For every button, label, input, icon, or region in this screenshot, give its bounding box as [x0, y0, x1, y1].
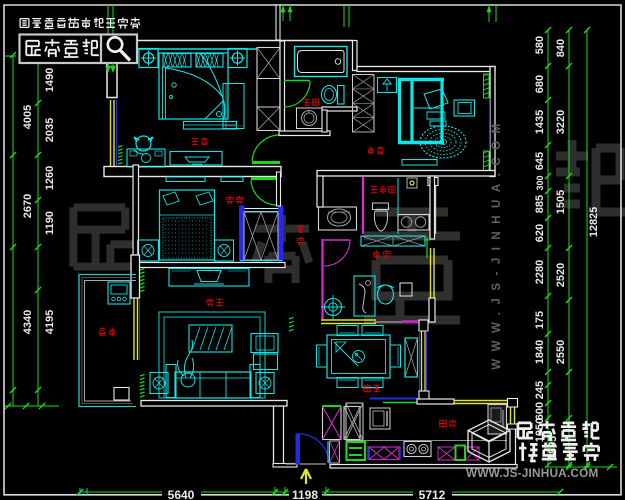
svg-text:1505: 1505: [555, 190, 567, 214]
svg-text:WWW.JS-JINHUA.COM: WWW.JS-JINHUA.COM: [466, 466, 599, 480]
svg-text:680: 680: [534, 75, 546, 93]
svg-text:300: 300: [535, 175, 545, 190]
svg-text:245: 245: [534, 381, 546, 399]
svg-text:1840: 1840: [534, 340, 546, 364]
svg-text:175: 175: [534, 311, 546, 329]
svg-text:2280: 2280: [534, 260, 546, 284]
svg-text:2035: 2035: [44, 118, 56, 142]
svg-text:1198: 1198: [292, 488, 318, 500]
svg-text:2670: 2670: [22, 194, 34, 218]
svg-text:WWW.JS-JINHUA.COM: WWW.JS-JINHUA.COM: [491, 116, 503, 369]
svg-text:885: 885: [534, 195, 546, 213]
svg-text:1260: 1260: [44, 166, 56, 190]
svg-text:620: 620: [534, 224, 546, 242]
svg-text:600: 600: [534, 402, 546, 420]
svg-text:2550: 2550: [555, 340, 567, 364]
svg-text:4195: 4195: [44, 310, 56, 334]
svg-text:4005: 4005: [22, 105, 34, 129]
svg-text:840: 840: [555, 39, 567, 57]
svg-text:580: 580: [534, 36, 546, 54]
svg-text:1490: 1490: [44, 68, 56, 92]
svg-text:1190: 1190: [44, 211, 56, 235]
svg-text:5712: 5712: [419, 488, 446, 500]
svg-text:1435: 1435: [534, 110, 546, 134]
svg-text:5640: 5640: [168, 488, 195, 500]
svg-text:2520: 2520: [555, 263, 567, 287]
svg-text:645: 645: [534, 152, 546, 170]
svg-text:3220: 3220: [555, 110, 567, 134]
svg-text:4340: 4340: [22, 310, 34, 334]
svg-text:12825: 12825: [588, 207, 600, 238]
